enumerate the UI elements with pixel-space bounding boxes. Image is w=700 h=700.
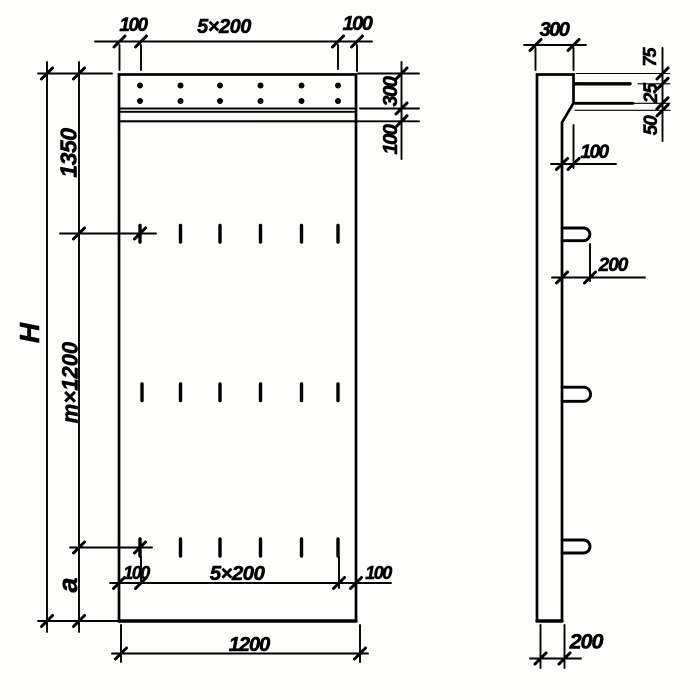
svg-text:100: 100 — [343, 13, 373, 35]
svg-text:H: H — [14, 322, 45, 343]
svg-text:200: 200 — [598, 255, 629, 276]
svg-text:1200: 1200 — [229, 634, 270, 656]
svg-text:m×1200: m×1200 — [58, 341, 83, 423]
svg-text:a: a — [53, 577, 83, 592]
svg-text:300: 300 — [380, 76, 402, 106]
svg-text:75: 75 — [640, 47, 660, 67]
svg-text:25: 25 — [641, 83, 662, 105]
svg-text:5×200: 5×200 — [210, 562, 266, 585]
svg-text:100: 100 — [380, 124, 402, 154]
svg-text:100: 100 — [119, 15, 148, 36]
svg-text:100: 100 — [580, 142, 609, 163]
svg-text:1350: 1350 — [56, 128, 82, 178]
svg-text:300: 300 — [540, 19, 570, 41]
svg-text:5×200: 5×200 — [197, 16, 251, 38]
svg-text:200: 200 — [569, 630, 604, 654]
svg-text:100: 100 — [123, 563, 150, 583]
svg-text:100: 100 — [365, 563, 392, 583]
svg-text:50: 50 — [641, 115, 662, 136]
